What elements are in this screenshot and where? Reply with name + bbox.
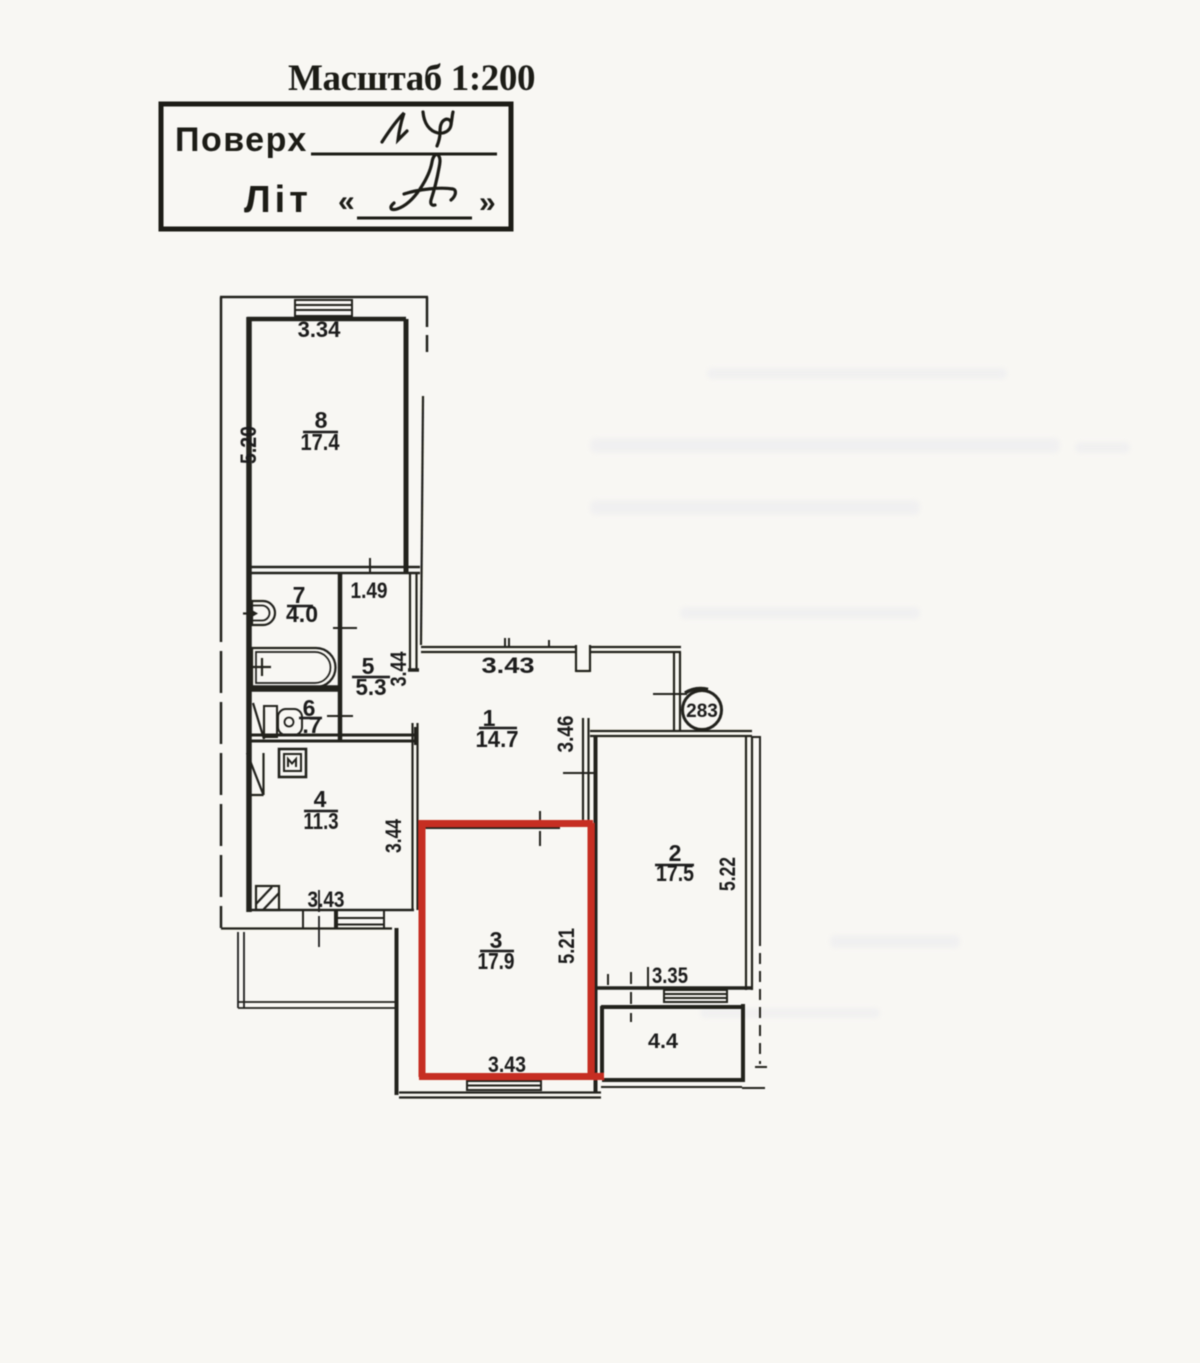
svg-text:3.43: 3.43 — [308, 887, 345, 912]
svg-text:«: « — [338, 185, 355, 218]
svg-text:»: » — [479, 186, 496, 219]
svg-text:4.4: 4.4 — [648, 1030, 678, 1053]
svg-text:5.20: 5.20 — [236, 426, 261, 464]
svg-text:Літ: Літ — [244, 179, 312, 221]
svg-text:283: 283 — [686, 701, 718, 722]
svg-text:3.35: 3.35 — [652, 963, 688, 988]
svg-text:1.49: 1.49 — [351, 578, 388, 603]
svg-text:3.43: 3.43 — [488, 1052, 526, 1077]
svg-text:5.22: 5.22 — [715, 857, 740, 891]
svg-text:3.44: 3.44 — [386, 651, 411, 687]
svg-text:3.46: 3.46 — [553, 716, 578, 753]
svg-text:3.43: 3.43 — [482, 653, 535, 678]
svg-text:5.21: 5.21 — [554, 928, 579, 964]
svg-text:Поверх: Поверх — [175, 121, 308, 159]
svg-text:3.34: 3.34 — [298, 317, 342, 342]
svg-text:.7: .7 — [302, 712, 321, 738]
svg-text:3.44: 3.44 — [381, 818, 406, 853]
svg-text:14.7: 14.7 — [476, 726, 519, 752]
svg-text:Масштаб 1:200: Масштаб 1:200 — [288, 58, 535, 99]
